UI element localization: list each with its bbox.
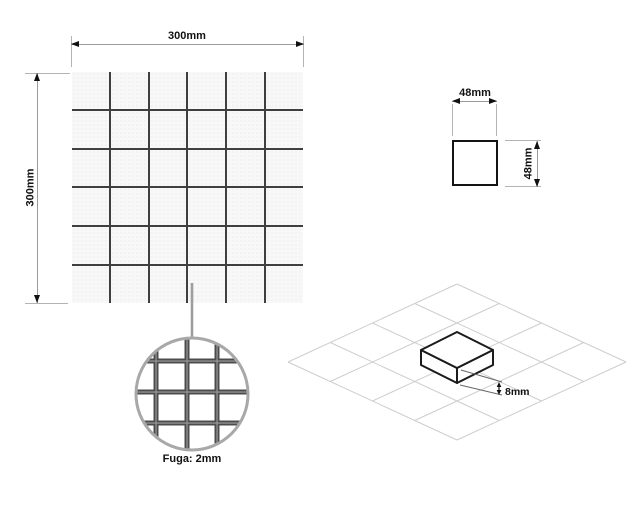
mosaic-tile xyxy=(72,150,109,187)
mosaic-tile xyxy=(150,72,187,109)
mosaic-tile xyxy=(188,150,225,187)
extension-line xyxy=(25,303,68,304)
mosaic-tile xyxy=(227,227,264,264)
mosaic-tile xyxy=(72,72,109,109)
mosaic-tile xyxy=(188,111,225,148)
mosaic-tile xyxy=(72,266,109,303)
grout-center-line xyxy=(186,335,187,455)
mosaic-tile xyxy=(266,150,303,187)
extension-line xyxy=(25,73,70,74)
mosaic-tile xyxy=(111,72,148,109)
mosaic-tile xyxy=(150,150,187,187)
iso-tile xyxy=(421,332,493,383)
mosaic-tile xyxy=(111,150,148,187)
chip-width-label: 48mm xyxy=(445,87,505,100)
single-chip xyxy=(452,140,498,186)
mosaic-tile xyxy=(227,188,264,225)
mosaic-tile xyxy=(111,188,148,225)
mosaic-tile xyxy=(266,227,303,264)
mosaic-tile xyxy=(227,111,264,148)
grout-center-line xyxy=(130,422,255,423)
grout-center-line xyxy=(130,391,255,392)
thickness-label: 8mm xyxy=(505,386,530,398)
mosaic-tile xyxy=(111,227,148,264)
mosaic-width-label: 300mm xyxy=(157,30,217,43)
mosaic-tile xyxy=(188,227,225,264)
mosaic-tile xyxy=(111,111,148,148)
isometric-view: 8mm xyxy=(280,275,640,455)
grout-magnifier xyxy=(130,275,255,460)
mosaic-tile xyxy=(150,111,187,148)
mosaic-tile xyxy=(188,188,225,225)
mosaic-tile xyxy=(227,150,264,187)
mosaic-tile xyxy=(72,111,109,148)
mosaic-tile xyxy=(188,72,225,109)
chip-height-label: 48mm xyxy=(523,134,536,194)
extension-line xyxy=(460,385,502,395)
extension-line xyxy=(452,104,453,136)
mosaic-tile xyxy=(227,72,264,109)
grout-center-line xyxy=(216,335,217,455)
mosaic-tile xyxy=(266,188,303,225)
arrowhead-left-icon xyxy=(71,41,79,47)
mosaic-tile xyxy=(266,72,303,109)
mosaic-tile xyxy=(72,227,109,264)
arrowhead-right-icon xyxy=(296,41,304,47)
mosaic-tile xyxy=(266,111,303,148)
dimension-line xyxy=(71,44,304,45)
mosaic-height-label: 300mm xyxy=(25,158,38,218)
extension-line xyxy=(496,104,497,136)
grout-size-label: Fuga: 2mm xyxy=(142,453,242,466)
arrowhead-down-icon xyxy=(34,295,40,303)
arrowhead-up-icon xyxy=(34,73,40,81)
mosaic-tile xyxy=(150,188,187,225)
spec-drawing-canvas: 300mm 300mm 48mm 48mm xyxy=(0,0,640,512)
mosaic-grid xyxy=(72,72,303,303)
mosaic-tile xyxy=(150,227,187,264)
mosaic-tile xyxy=(72,188,109,225)
